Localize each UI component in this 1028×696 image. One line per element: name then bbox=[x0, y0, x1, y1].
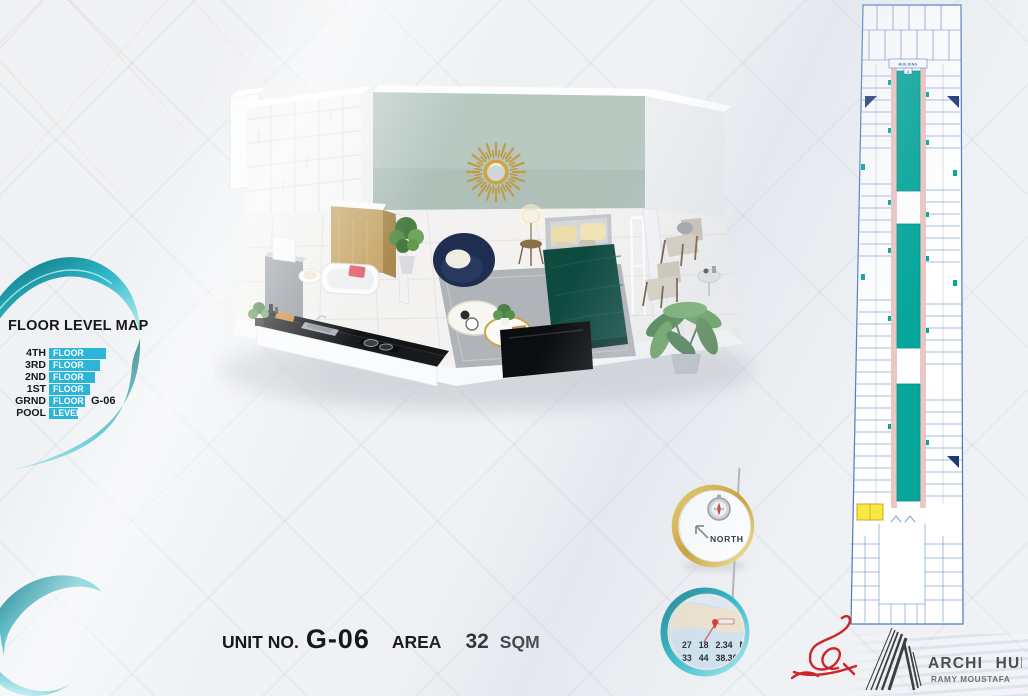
unit-tag: G-06 bbox=[91, 395, 115, 407]
floor-row-pool: POOL LEVEL bbox=[8, 408, 158, 419]
north-label: NORTH bbox=[710, 534, 744, 544]
site-plan-building: BUILDING 2 bbox=[843, 4, 967, 628]
building-label: BUILDING bbox=[899, 63, 918, 67]
bathroom-tile-wall bbox=[247, 93, 365, 214]
floor-bar: FLOOR bbox=[49, 396, 85, 407]
floor-bar: FLOOR bbox=[49, 348, 106, 359]
location-map-badge: 27 18 2.34 N 33 44 38.36 E bbox=[654, 580, 758, 684]
floor-level-map-title: FLOOR LEVEL MAP bbox=[8, 318, 158, 334]
archi-hub-logo: ARCHI HUB RAMY MOUSTAFA bbox=[852, 626, 1022, 692]
right-wall bbox=[645, 96, 725, 218]
area-unit: SQM bbox=[500, 632, 540, 653]
unit-caption: UNIT NO. G-06 AREA 32 SQM bbox=[222, 624, 540, 655]
floor-bar: FLOOR bbox=[49, 360, 100, 371]
studio-author: RAMY MOUSTAFA bbox=[931, 675, 1010, 684]
building-number: 2 bbox=[907, 70, 909, 74]
floor-row-1st: 1ST FLOOR bbox=[8, 384, 158, 395]
floor-plan-3d-render bbox=[213, 68, 761, 430]
floor-row-2nd: 2ND FLOOR bbox=[8, 372, 158, 383]
studio-name: ARCHI HUB bbox=[928, 655, 1022, 672]
teal-swirl-bottom bbox=[0, 556, 140, 696]
floor-row-4th: 4TH FLOOR bbox=[8, 348, 158, 359]
floor-bar: FLOOR bbox=[49, 372, 95, 383]
pool-strip bbox=[897, 71, 920, 191]
navy-armchair bbox=[433, 233, 495, 287]
presentation-canvas: BUILDING 2 bbox=[0, 0, 1028, 696]
floor-bar: FLOOR bbox=[49, 384, 90, 395]
floor-bar: LEVEL bbox=[49, 408, 78, 419]
north-compass-badge: NORTH bbox=[666, 476, 760, 576]
logo-mark bbox=[866, 628, 921, 690]
unit-label: UNIT NO. bbox=[222, 632, 299, 653]
area-value: 32 bbox=[465, 630, 488, 654]
floor-row-3rd: 3RD FLOOR bbox=[8, 360, 158, 371]
unit-number: G-06 bbox=[306, 624, 370, 655]
latitude: 27 18 2.34 N bbox=[682, 640, 746, 650]
area-label: AREA bbox=[392, 632, 442, 653]
floor-row-grnd: GRND FLOOR G-06 bbox=[8, 396, 158, 407]
floor-level-map: FLOOR LEVEL MAP 4TH FLOOR 3RD FLOOR 2ND … bbox=[8, 318, 158, 420]
tv-screen bbox=[500, 321, 593, 378]
